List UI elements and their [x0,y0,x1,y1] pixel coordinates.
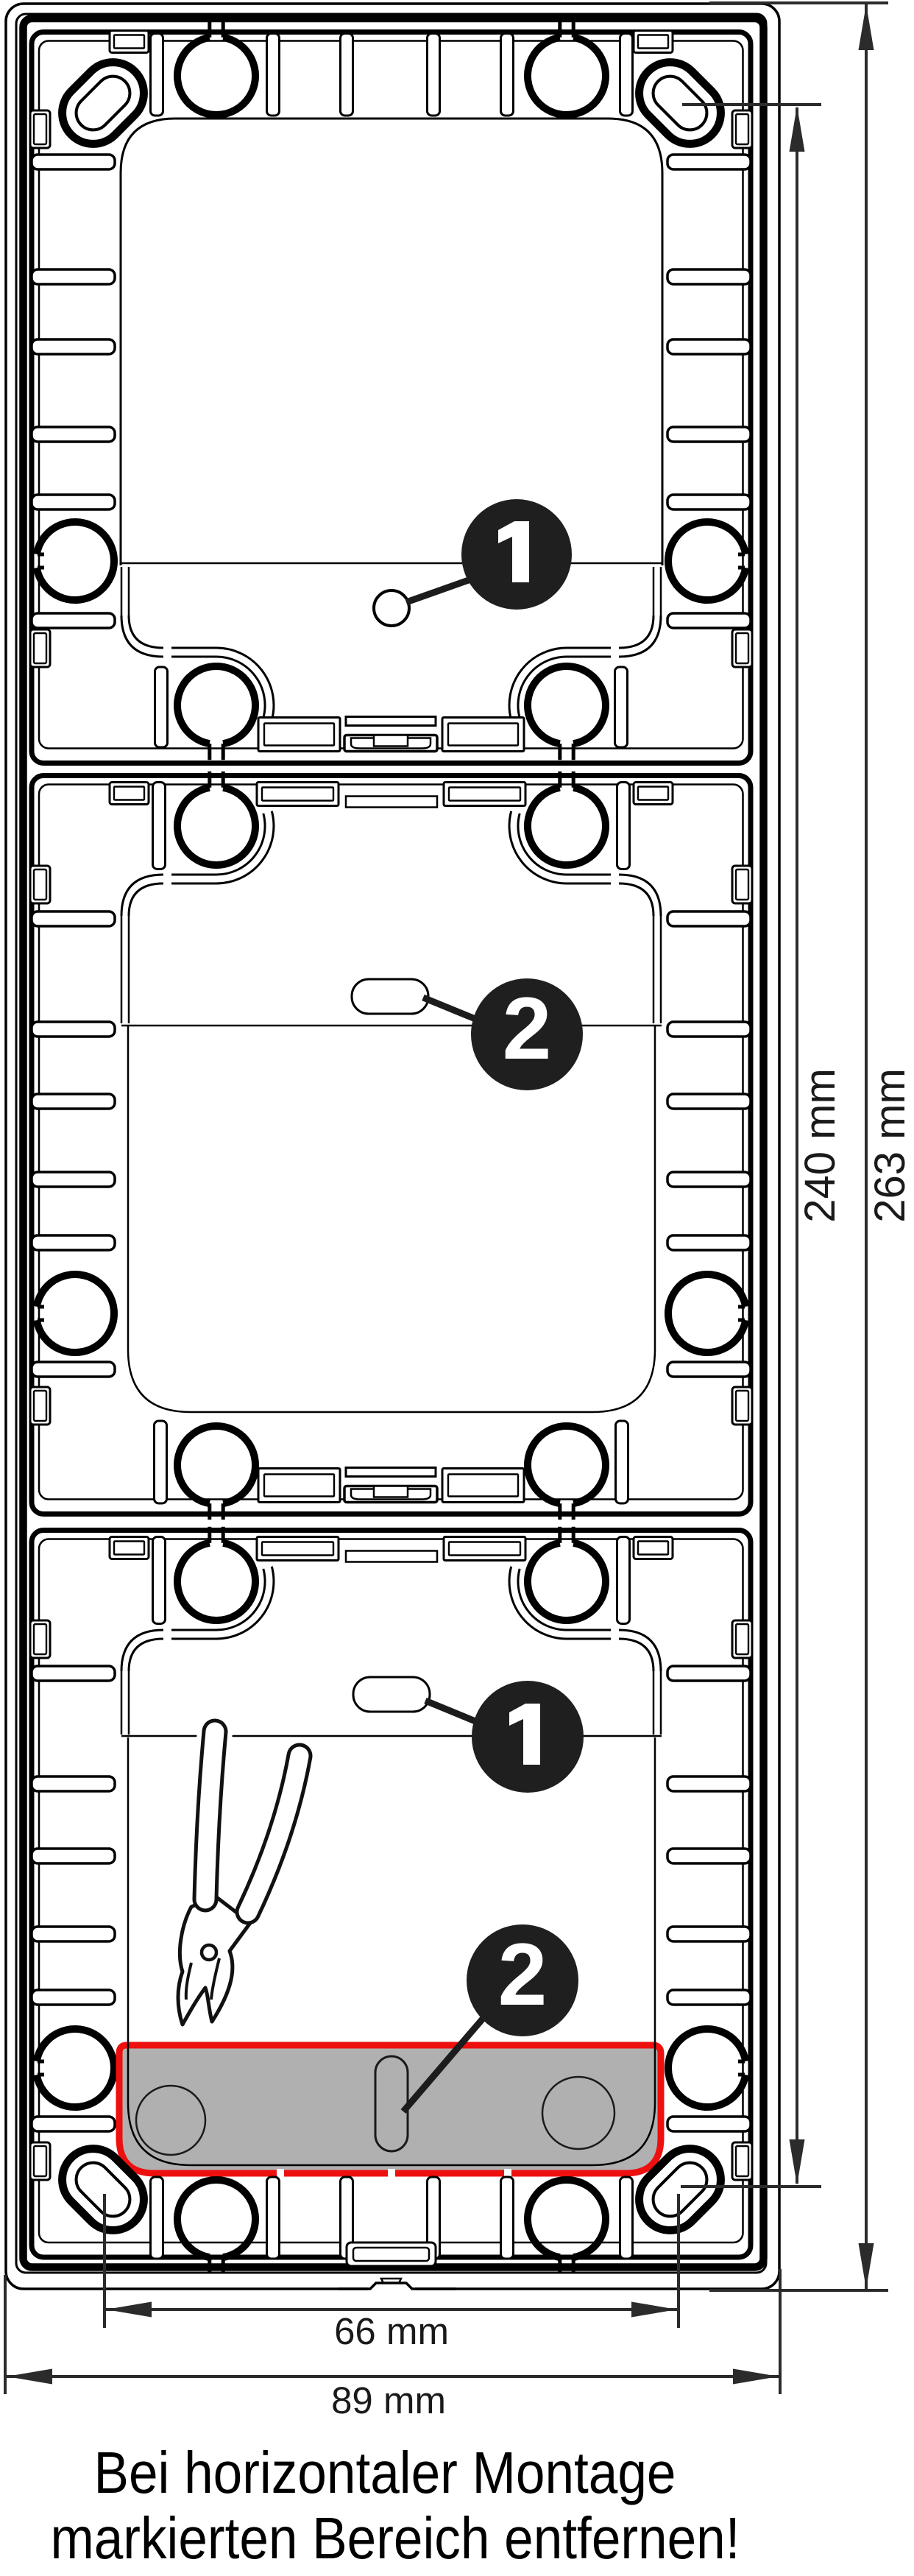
svg-text:240 mm: 240 mm [796,1068,844,1223]
svg-text:markierten Bereich entfernen!: markierten Bereich entfernen! [51,2505,740,2571]
svg-text:2: 2 [503,979,552,1078]
svg-text:2: 2 [498,1925,548,2024]
svg-text:66 mm: 66 mm [334,2310,449,2352]
svg-text:Bei horizontaler Montage: Bei horizontaler Montage [94,2440,676,2505]
svg-text:89 mm: 89 mm [331,2379,446,2421]
svg-text:263 mm: 263 mm [866,1068,914,1223]
